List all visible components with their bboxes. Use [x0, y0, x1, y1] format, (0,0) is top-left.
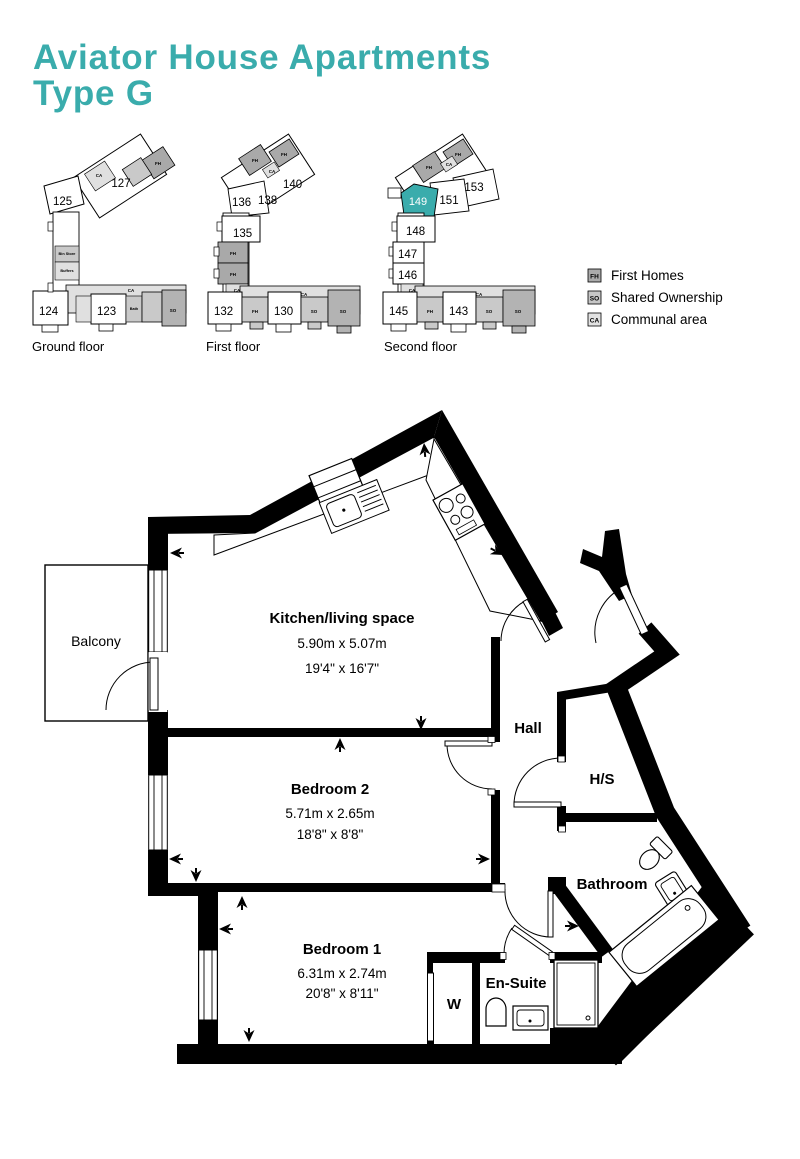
svg-text:147: 147	[398, 249, 417, 261]
svg-text:Bedroom 1: Bedroom 1	[303, 941, 381, 958]
svg-text:Communal area: Communal area	[611, 312, 708, 327]
svg-text:125: 125	[53, 196, 72, 208]
svg-text:Bath: Bath	[130, 307, 139, 311]
svg-text:19'4" x 16'7": 19'4" x 16'7"	[305, 661, 379, 676]
svg-text:124: 124	[39, 306, 59, 318]
svg-text:CA: CA	[96, 173, 103, 178]
svg-text:143: 143	[449, 306, 468, 318]
svg-text:FH: FH	[455, 152, 461, 157]
svg-text:Kitchen/living space: Kitchen/living space	[269, 610, 414, 627]
svg-text:Bathroom: Bathroom	[577, 876, 648, 893]
svg-text:5.90m x 5.07m: 5.90m x 5.07m	[297, 636, 386, 651]
svg-text:SO: SO	[486, 309, 493, 314]
svg-text:127: 127	[111, 178, 130, 190]
svg-text:CA: CA	[590, 318, 600, 325]
svg-text:149: 149	[409, 196, 427, 208]
svg-text:CA: CA	[128, 288, 135, 293]
svg-text:Type G: Type G	[33, 74, 154, 113]
svg-text:En-Suite: En-Suite	[486, 975, 547, 992]
svg-text:138: 138	[258, 195, 277, 207]
svg-text:146: 146	[398, 270, 417, 282]
svg-text:CA: CA	[269, 169, 276, 174]
svg-text:CA: CA	[301, 292, 308, 297]
svg-text:Buffers: Buffers	[60, 269, 73, 273]
svg-text:FH: FH	[426, 165, 432, 170]
svg-text:SO: SO	[590, 296, 599, 303]
svg-text:Balcony: Balcony	[71, 633, 121, 649]
svg-text:135: 135	[233, 228, 252, 240]
svg-text:Second floor: Second floor	[384, 339, 458, 354]
svg-text:Aviator House Apartments: Aviator House Apartments	[33, 38, 491, 77]
svg-text:136: 136	[232, 197, 251, 209]
svg-text:151: 151	[439, 195, 458, 207]
svg-text:153: 153	[464, 182, 483, 194]
svg-text:5.71m x 2.65m: 5.71m x 2.65m	[285, 806, 374, 821]
svg-text:FH: FH	[427, 309, 433, 314]
svg-text:130: 130	[274, 306, 293, 318]
svg-text:Shared Ownership: Shared Ownership	[611, 290, 723, 305]
svg-text:SO: SO	[311, 309, 318, 314]
svg-text:SO: SO	[515, 309, 522, 314]
svg-text:SO: SO	[340, 309, 347, 314]
svg-text:H/S: H/S	[589, 771, 614, 788]
svg-text:FH: FH	[590, 274, 599, 281]
svg-text:140: 140	[283, 179, 302, 191]
svg-text:First floor: First floor	[206, 339, 261, 354]
svg-text:FH: FH	[281, 152, 287, 157]
svg-text:Bin Store: Bin Store	[59, 252, 76, 256]
svg-text:W: W	[447, 996, 462, 1013]
svg-text:SO: SO	[170, 308, 177, 313]
svg-text:First Homes: First Homes	[611, 268, 684, 283]
svg-text:FH: FH	[230, 251, 236, 256]
svg-text:148: 148	[406, 226, 425, 238]
svg-text:Hall: Hall	[514, 720, 542, 737]
svg-text:123: 123	[97, 306, 116, 318]
svg-text:FH: FH	[252, 309, 258, 314]
svg-text:Bedroom 2: Bedroom 2	[291, 781, 369, 798]
svg-text:Ground floor: Ground floor	[32, 339, 105, 354]
svg-text:CA: CA	[476, 292, 483, 297]
svg-text:132: 132	[214, 306, 233, 318]
svg-text:145: 145	[389, 306, 408, 318]
svg-text:FH: FH	[230, 272, 236, 277]
svg-text:FH: FH	[155, 161, 161, 166]
svg-text:6.31m x 2.74m: 6.31m x 2.74m	[297, 966, 386, 981]
svg-text:CA: CA	[446, 162, 453, 167]
svg-text:FH: FH	[252, 158, 258, 163]
svg-text:20'8" x 8'11": 20'8" x 8'11"	[305, 986, 378, 1001]
svg-text:18'8" x 8'8": 18'8" x 8'8"	[297, 827, 364, 842]
